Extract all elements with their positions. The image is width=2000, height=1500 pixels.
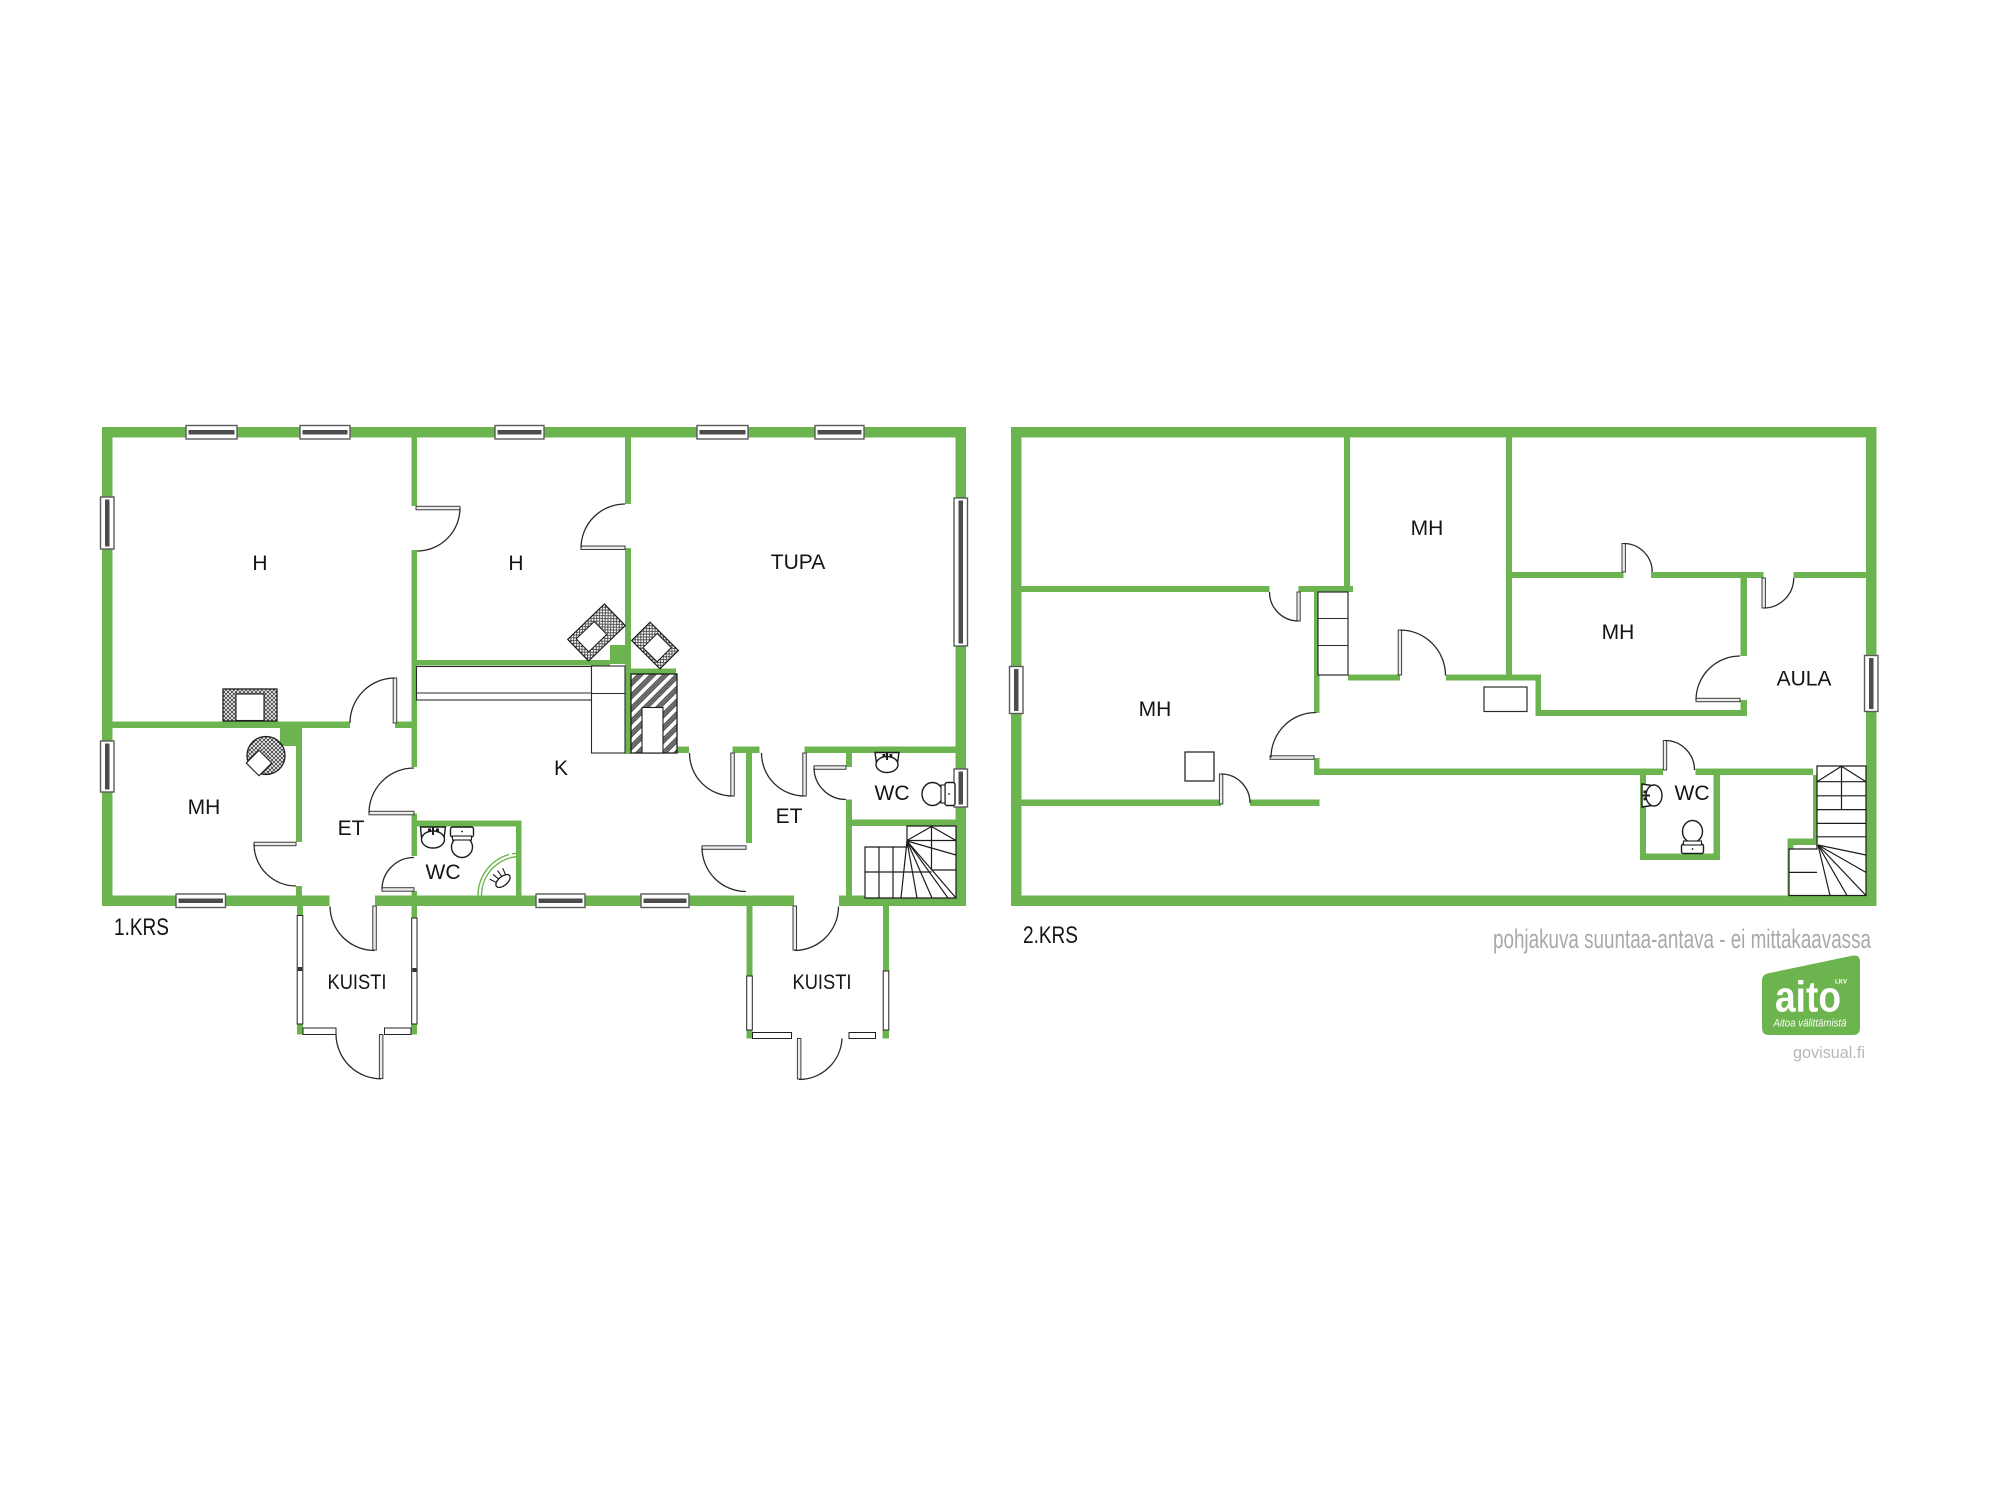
svg-text:govisual.fi: govisual.fi — [1793, 1043, 1865, 1062]
svg-text:WC: WC — [426, 861, 461, 884]
svg-text:ET: ET — [338, 817, 365, 840]
svg-text:1.KRS: 1.KRS — [114, 914, 169, 941]
svg-text:KUISTI: KUISTI — [793, 971, 852, 994]
svg-text:AULA: AULA — [1777, 668, 1832, 691]
svg-text:Aitoa välittämistä: Aitoa välittämistä — [1773, 1018, 1847, 1030]
svg-text:WC: WC — [1675, 782, 1710, 805]
svg-text:MH: MH — [1411, 517, 1444, 540]
svg-text:WC: WC — [875, 782, 910, 805]
svg-text:ET: ET — [776, 805, 803, 828]
svg-text:aito: aito — [1775, 973, 1841, 1022]
svg-text:H: H — [252, 552, 267, 575]
svg-text:MH: MH — [1139, 698, 1172, 721]
svg-text:KUISTI: KUISTI — [328, 971, 387, 994]
svg-text:TUPA: TUPA — [771, 551, 825, 574]
svg-text:LKV: LKV — [1835, 980, 1847, 986]
svg-text:H: H — [508, 552, 523, 575]
svg-text:K: K — [554, 757, 568, 780]
svg-text:MH: MH — [188, 796, 221, 819]
svg-text:2.KRS: 2.KRS — [1023, 922, 1078, 949]
svg-text:MH: MH — [1602, 621, 1635, 644]
svg-text:pohjakuva suuntaa-antava - ei: pohjakuva suuntaa-antava - ei mittakaava… — [1493, 924, 1872, 954]
